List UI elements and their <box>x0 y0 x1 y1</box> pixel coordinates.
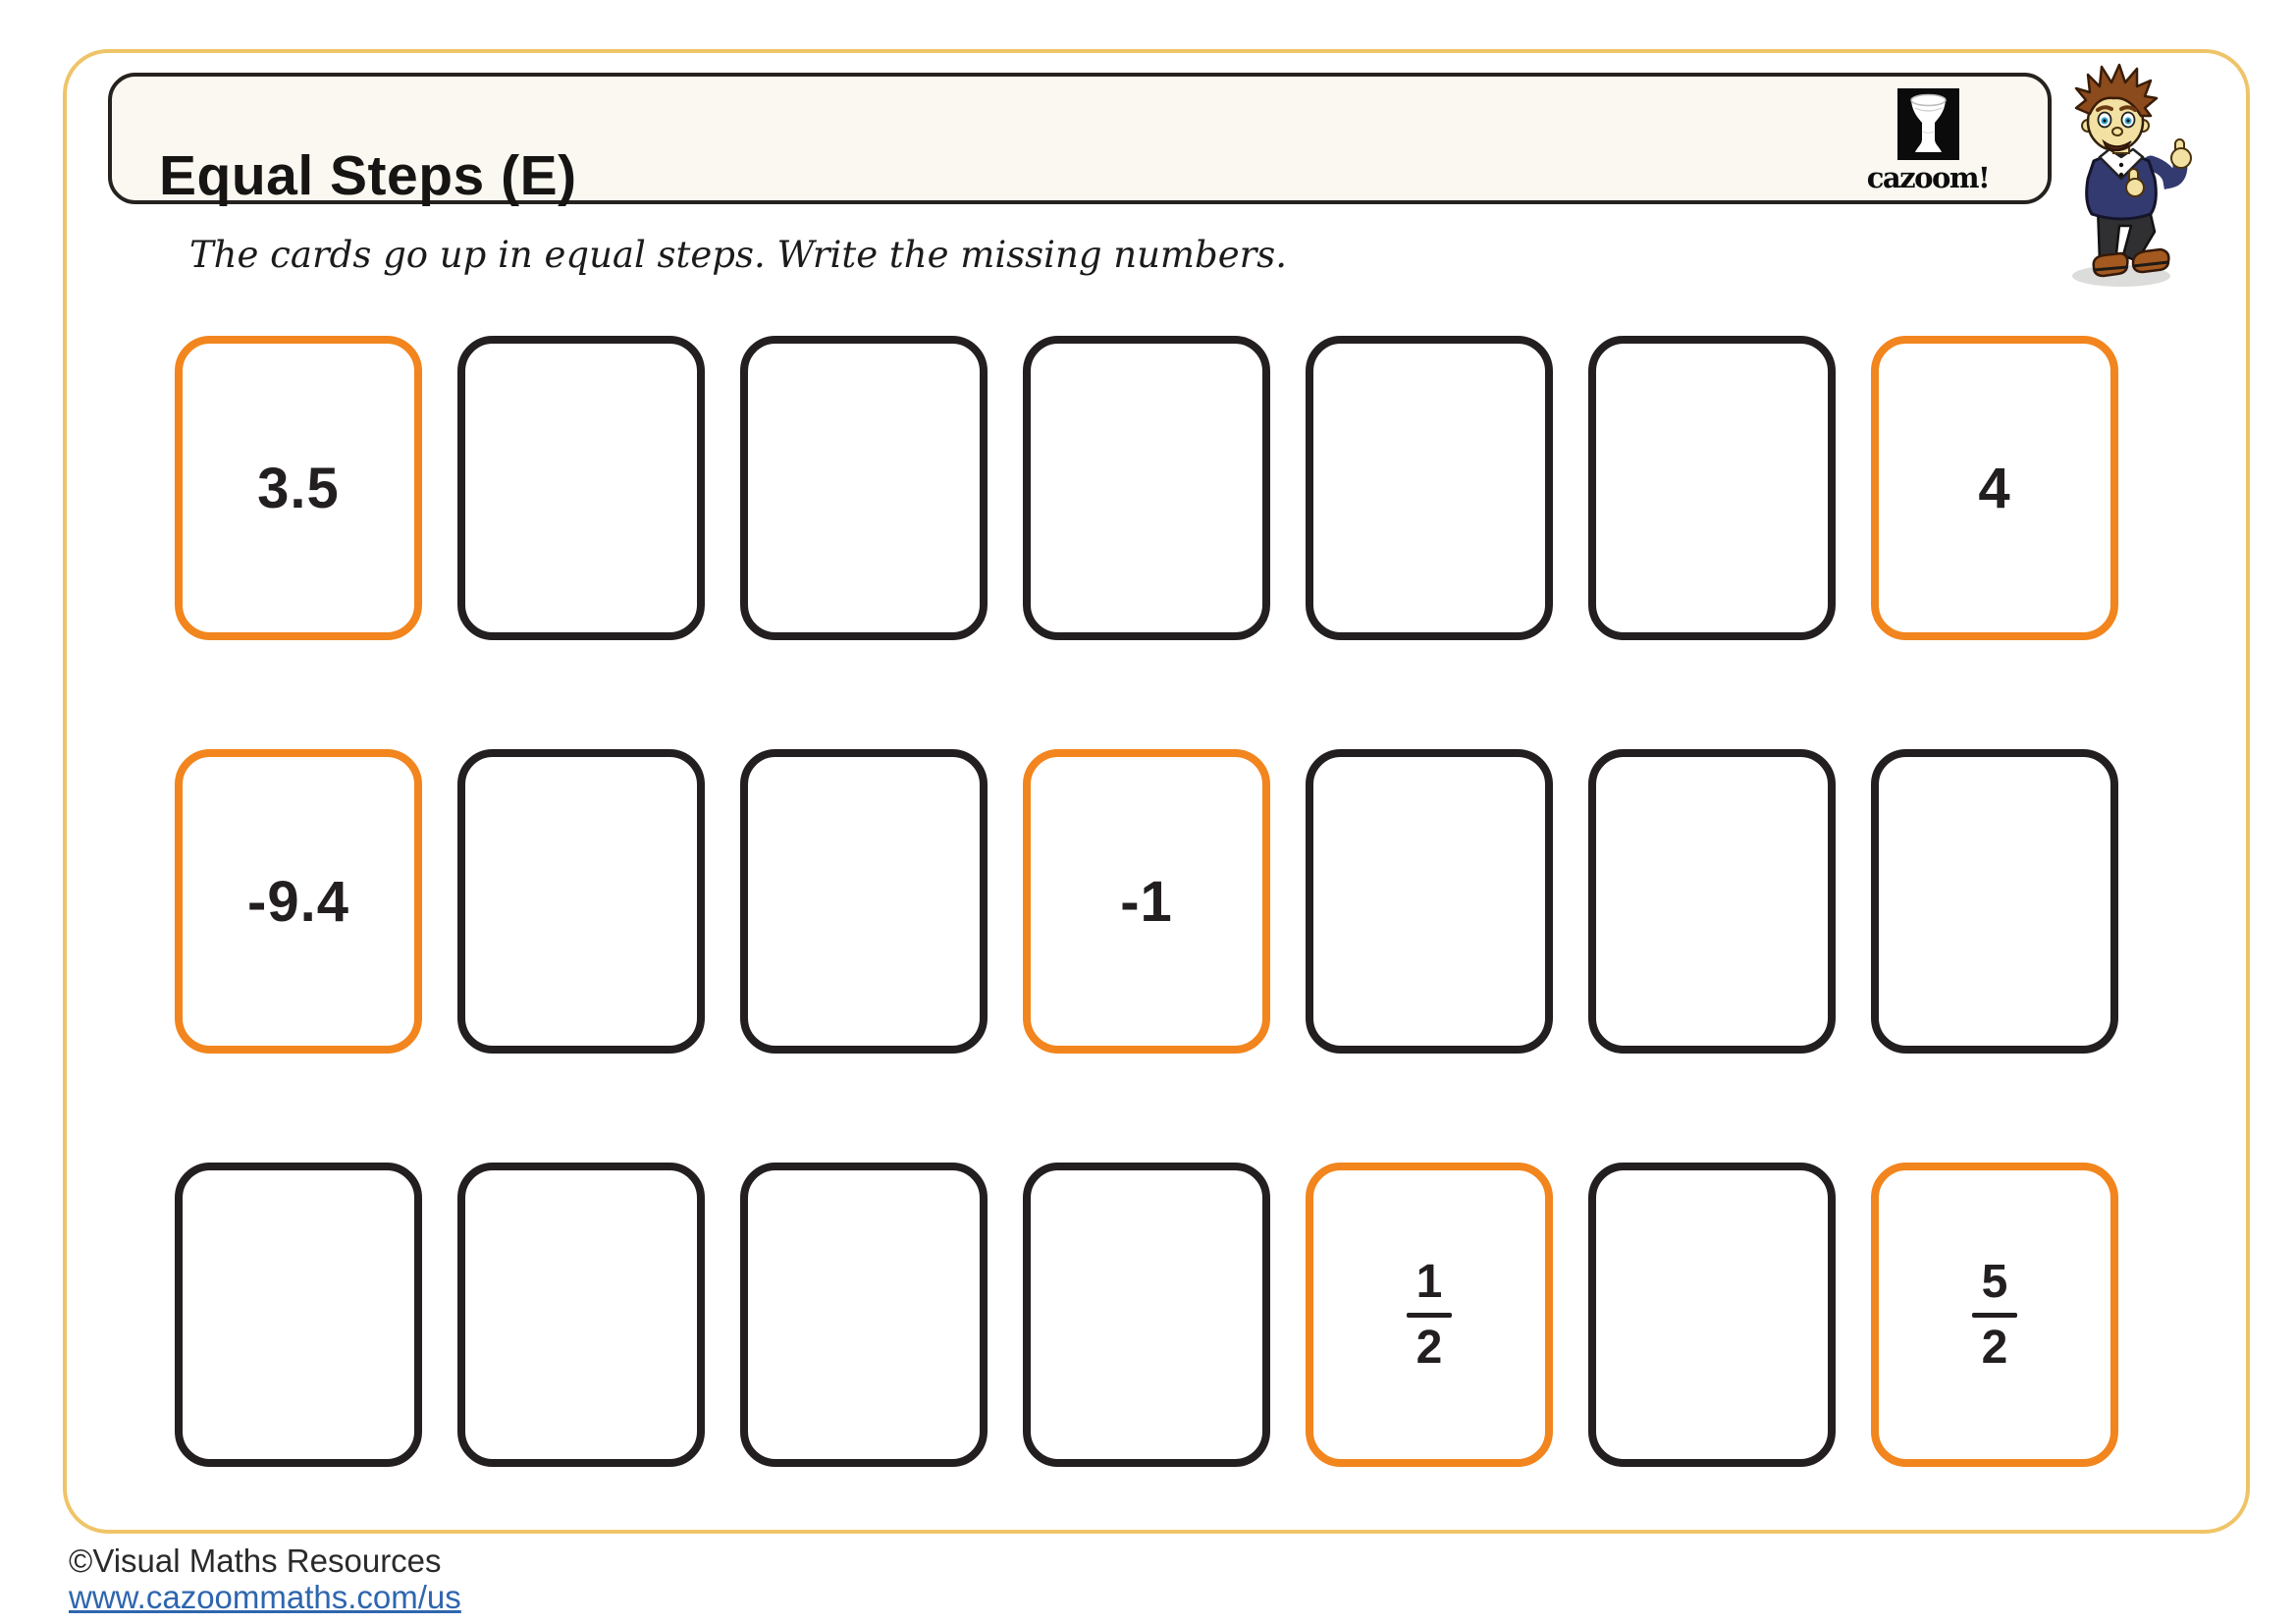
instruction-text: The cards go up in equal steps. Write th… <box>189 234 1287 276</box>
page-title: Equal Steps (E) <box>159 143 577 208</box>
card-row-2: -9.4-1 <box>175 749 2118 1054</box>
worksheet-page: Equal Steps (E) cazoom! The cards go up … <box>0 0 2296 1624</box>
mascot-boy-illustration <box>2064 59 2214 293</box>
fraction-value: 52 <box>1972 1259 2017 1372</box>
card-value: 3.5 <box>257 456 340 521</box>
title-box: Equal Steps (E) cazoom! <box>108 73 2052 204</box>
given-card: 12 <box>1306 1163 1553 1467</box>
given-card: 4 <box>1871 336 2118 640</box>
drum-icon <box>1897 88 1959 160</box>
answer-card[interactable] <box>1306 336 1553 640</box>
card-value: -1 <box>1120 869 1173 935</box>
card-row-1: 3.54 <box>175 336 2118 640</box>
card-row-3: 1252 <box>175 1163 2118 1467</box>
answer-card[interactable] <box>740 1163 988 1467</box>
answer-card[interactable] <box>740 749 988 1054</box>
card-value: 4 <box>1978 456 2010 521</box>
worksheet-sheet: Equal Steps (E) cazoom! The cards go up … <box>63 49 2250 1534</box>
answer-card[interactable] <box>457 1163 705 1467</box>
answer-card[interactable] <box>1306 749 1553 1054</box>
fraction-value: 12 <box>1407 1259 1452 1372</box>
answer-card[interactable] <box>1023 336 1270 640</box>
answer-card[interactable] <box>1588 1163 1836 1467</box>
given-card: 52 <box>1871 1163 2118 1467</box>
card-value: -9.4 <box>247 869 349 935</box>
answer-card[interactable] <box>175 1163 422 1467</box>
footer: ©Visual Maths Resources www.cazoommaths.… <box>69 1543 461 1616</box>
answer-card[interactable] <box>1588 749 1836 1054</box>
given-card: -1 <box>1023 749 1270 1054</box>
cazoom-logo: cazoom! <box>1849 88 2006 194</box>
answer-card[interactable] <box>1871 749 2118 1054</box>
answer-card[interactable] <box>457 749 705 1054</box>
answer-card[interactable] <box>740 336 988 640</box>
answer-card[interactable] <box>457 336 705 640</box>
given-card: 3.5 <box>175 336 422 640</box>
answer-card[interactable] <box>1588 336 1836 640</box>
given-card: -9.4 <box>175 749 422 1054</box>
copyright-text: ©Visual Maths Resources <box>69 1543 461 1580</box>
answer-card[interactable] <box>1023 1163 1270 1467</box>
cazoom-logo-text: cazoom! <box>1849 161 2006 194</box>
website-link[interactable]: www.cazoommaths.com/us <box>69 1579 461 1615</box>
